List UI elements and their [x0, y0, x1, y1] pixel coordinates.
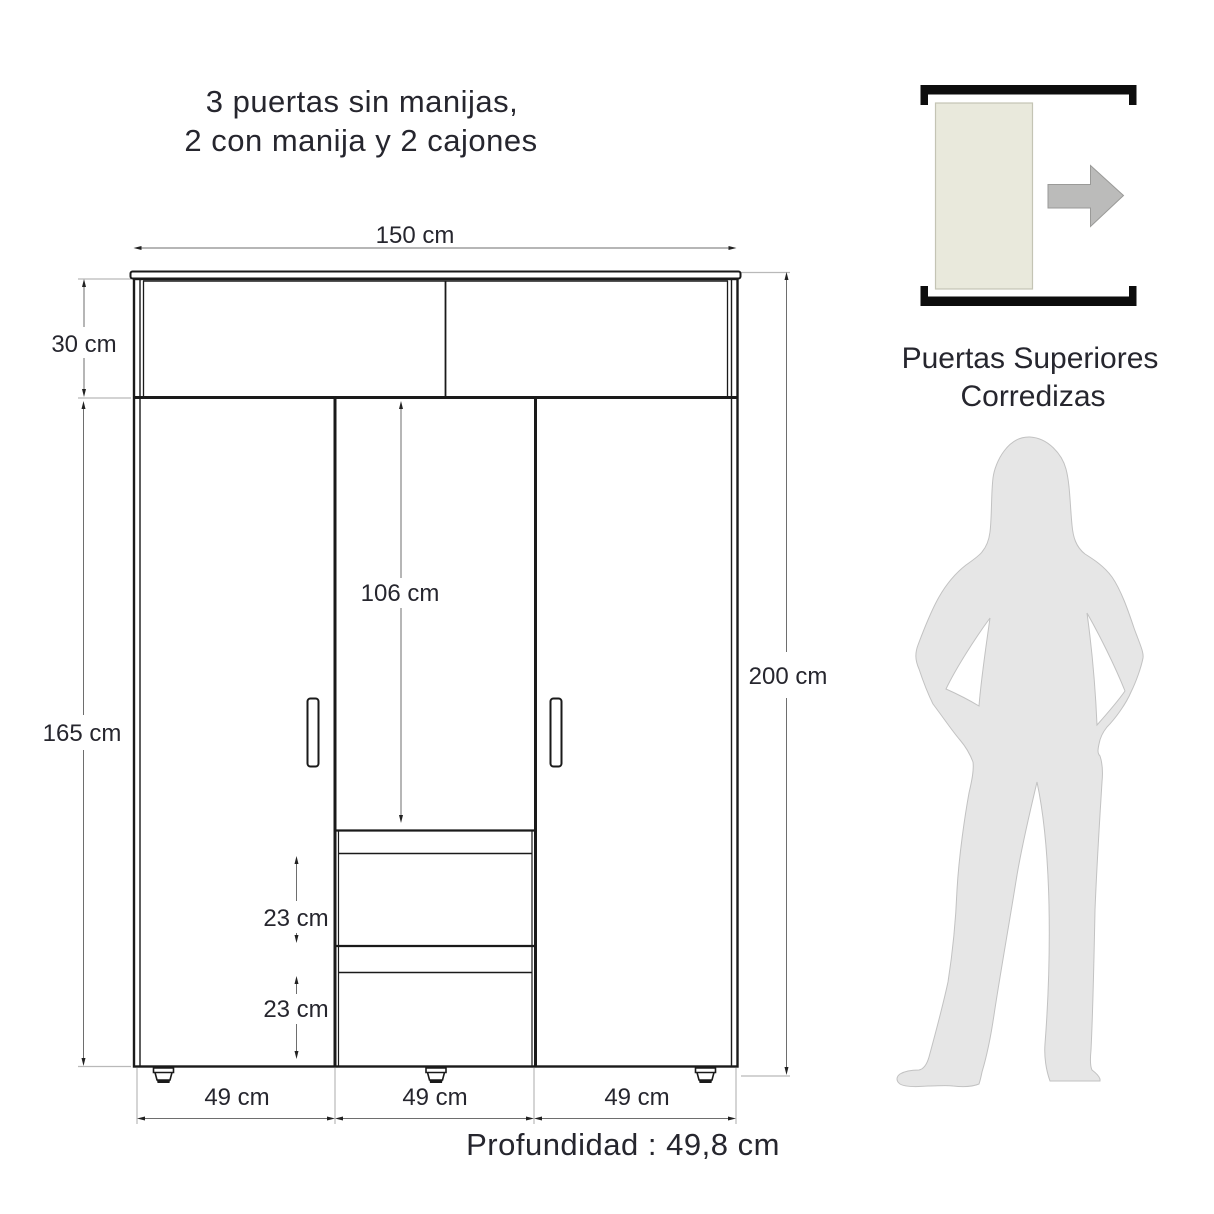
- svg-text:Puertas Superiores: Puertas Superiores: [902, 342, 1159, 375]
- svg-text:23 cm: 23 cm: [263, 905, 328, 932]
- svg-text:23 cm: 23 cm: [263, 996, 328, 1023]
- svg-text:Corredizas: Corredizas: [960, 380, 1105, 413]
- svg-text:49 cm: 49 cm: [402, 1084, 467, 1111]
- svg-text:150 cm: 150 cm: [376, 222, 455, 249]
- svg-text:2 con manija y 2 cajones: 2 con manija y 2 cajones: [184, 123, 537, 158]
- svg-text:30 cm: 30 cm: [51, 331, 116, 358]
- svg-text:49 cm: 49 cm: [204, 1084, 269, 1111]
- svg-text:106 cm: 106 cm: [361, 580, 440, 607]
- svg-text:3 puertas sin manijas,: 3 puertas sin manijas,: [206, 84, 519, 119]
- svg-text:200 cm: 200 cm: [749, 663, 828, 690]
- svg-text:49 cm: 49 cm: [604, 1084, 669, 1111]
- svg-text:165 cm: 165 cm: [43, 720, 122, 747]
- svg-text:Profundidad : 49,8 cm: Profundidad : 49,8 cm: [466, 1127, 780, 1162]
